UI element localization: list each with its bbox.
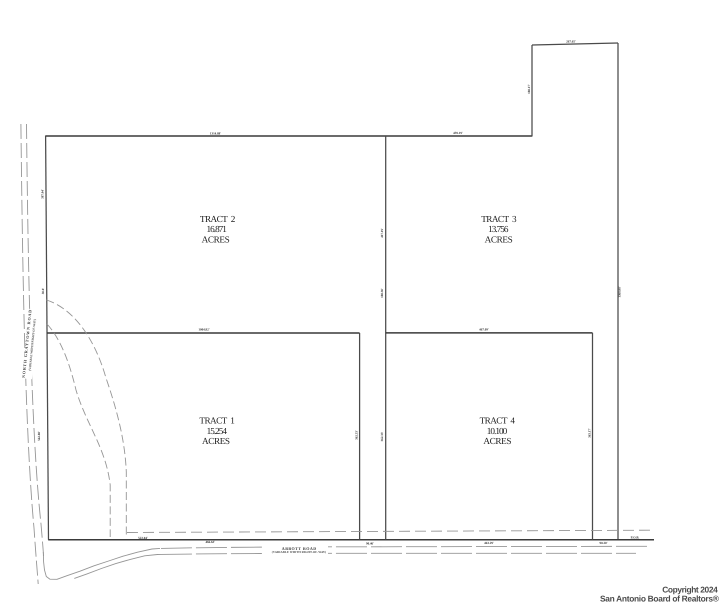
svg-text:417.19': 417.19' (380, 228, 384, 238)
svg-text:362.33': 362.33' (354, 430, 358, 440)
svg-text:459.19': 459.19' (453, 131, 463, 135)
svg-text:TRACT 4: TRACT 4 (480, 415, 516, 425)
svg-text:466.63': 466.63' (205, 540, 215, 544)
svg-text:10.100: 10.100 (487, 426, 508, 436)
svg-text:90.20': 90.20' (599, 541, 607, 545)
svg-text:362.33': 362.33' (380, 432, 384, 442)
svg-text:(VARIABLE WIDTH RIGHT-OF-WAY): (VARIABLE WIDTH RIGHT-OF-WAY) (272, 550, 326, 554)
svg-text:387.04': 387.04' (41, 189, 45, 199)
svg-text:ACRES: ACRES (483, 436, 511, 446)
svg-text:1314.88': 1314.88' (210, 131, 221, 135)
svg-text:1004.82': 1004.82' (198, 328, 209, 332)
svg-text:ACRES: ACRES (485, 234, 513, 244)
svg-text:16.871: 16.871 (207, 224, 228, 234)
svg-text:188.17': 188.17' (527, 84, 531, 94)
svg-text:TRACT 3: TRACT 3 (481, 214, 517, 224)
svg-text:522.04': 522.04' (138, 536, 148, 540)
svg-text:15.254: 15.254 (207, 426, 228, 436)
svg-text:1368.08': 1368.08' (618, 286, 622, 297)
svg-text:463.29': 463.29' (484, 541, 494, 545)
svg-text:188.30': 188.30' (380, 288, 384, 298)
svg-text:50.0': 50.0' (41, 288, 45, 295)
svg-text:90.46': 90.46' (366, 541, 374, 545)
svg-text:TRACT 2: TRACT 2 (200, 214, 236, 224)
svg-text:ACRES: ACRES (202, 436, 230, 446)
svg-text:San Antonio Board of Realtors®: San Antonio Board of Realtors® (600, 594, 720, 604)
svg-text:P.O.B.: P.O.B. (631, 536, 640, 540)
svg-text:363.17': 363.17' (587, 428, 591, 438)
svg-text:13.756: 13.756 (488, 224, 509, 234)
svg-text:ACRES: ACRES (202, 234, 230, 244)
svg-text:562.88': 562.88' (37, 431, 41, 441)
svg-text:467.09': 467.09' (479, 327, 489, 331)
svg-text:267.65': 267.65' (566, 40, 576, 44)
svg-text:TRACT 1: TRACT 1 (199, 415, 235, 425)
